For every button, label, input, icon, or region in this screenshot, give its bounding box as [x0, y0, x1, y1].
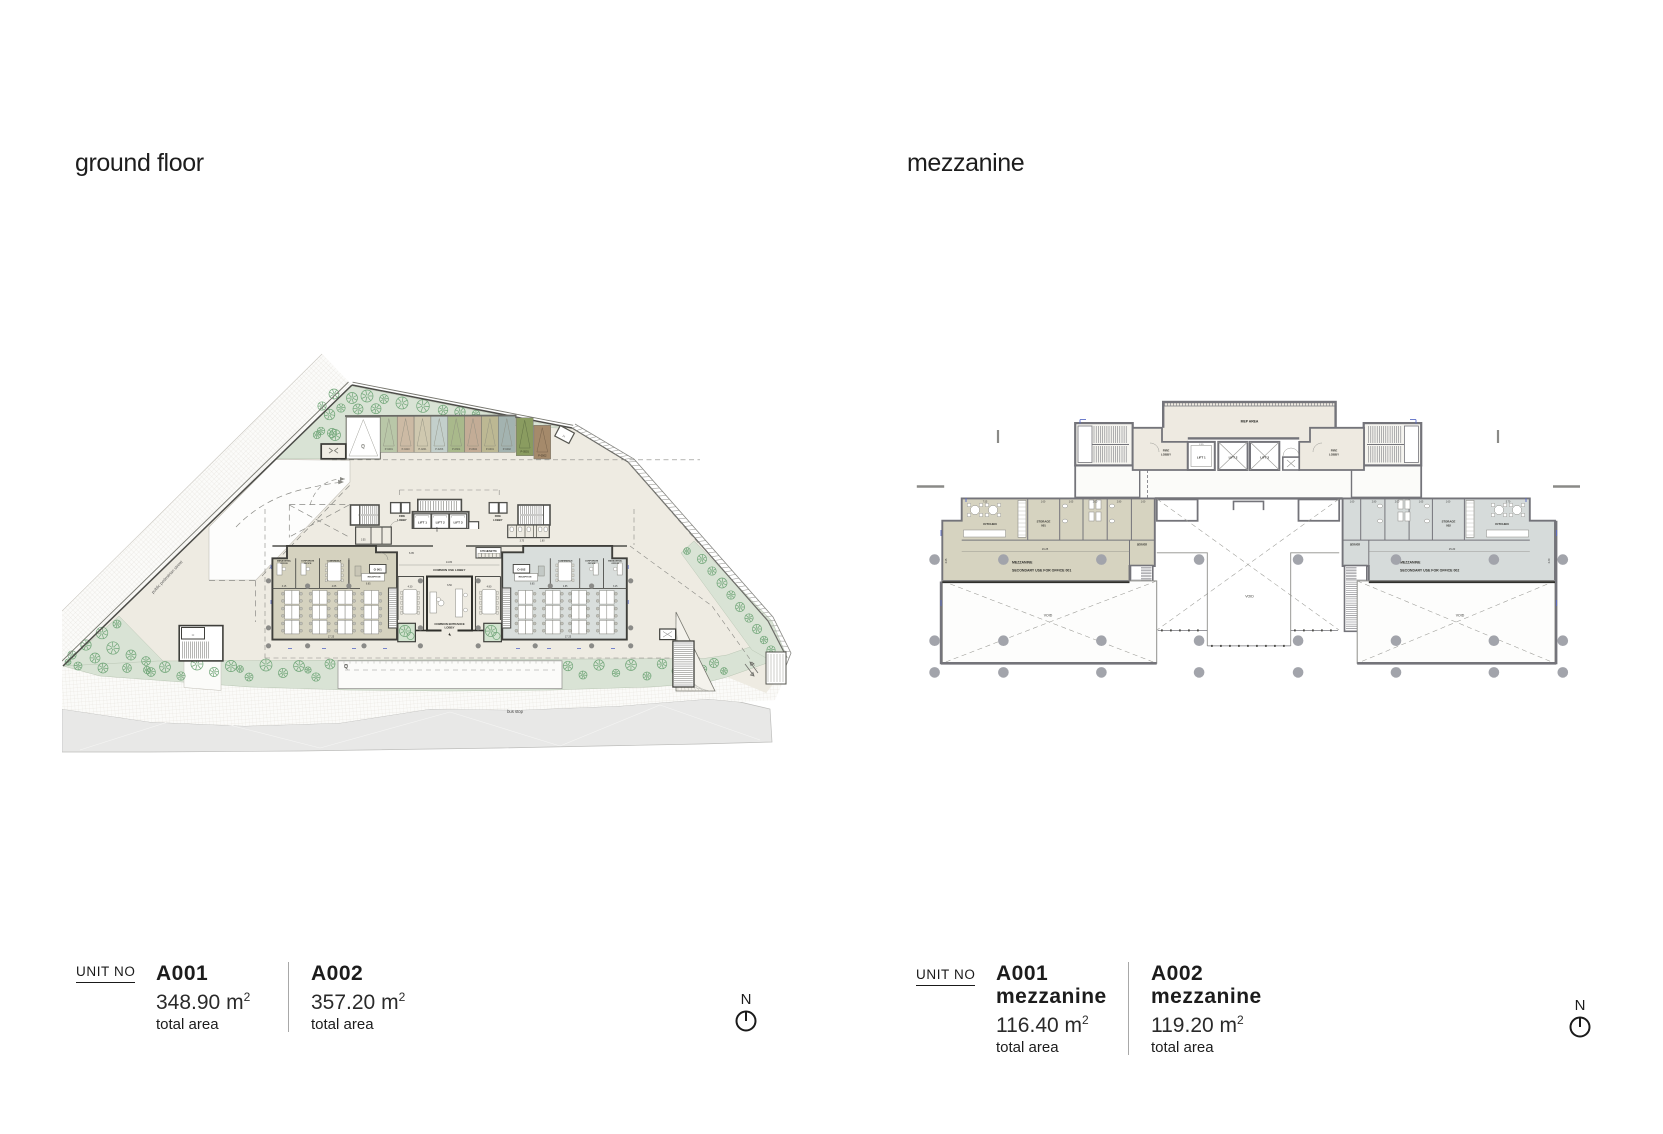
svg-text:OFFICE: OFFICE — [280, 563, 288, 565]
svg-text:1.65: 1.65 — [1419, 501, 1424, 503]
svg-text:3.15: 3.15 — [613, 586, 618, 588]
svg-text:2.00: 2.00 — [1093, 501, 1098, 503]
svg-text:P-0302: P-0302 — [469, 448, 478, 451]
svg-text:LIFT 1: LIFT 1 — [418, 520, 427, 524]
svg-text:3.25: 3.25 — [945, 558, 948, 563]
svg-text:1.65: 1.65 — [1069, 501, 1074, 503]
svg-text:5.70: 5.70 — [1506, 501, 1511, 503]
svg-text:RECEPTION: RECEPTION — [368, 577, 381, 579]
svg-text:CONFERENCE: CONFERENCE — [327, 561, 342, 563]
svg-text:17.25: 17.25 — [565, 635, 572, 638]
svg-text:VOID: VOID — [1245, 595, 1254, 599]
svg-text:002: 002 — [1446, 523, 1451, 527]
svg-text:3.40: 3.40 — [1548, 558, 1551, 563]
svg-text:MEZZANINE: MEZZANINE — [1012, 561, 1033, 565]
svg-text:CORPORATE: CORPORATE — [585, 560, 599, 563]
svg-text:FIRE: FIRE — [399, 514, 405, 518]
svg-text:6.95: 6.95 — [409, 552, 414, 555]
svg-text:1.60: 1.60 — [1141, 501, 1146, 503]
svg-text:LOBBY: LOBBY — [444, 626, 454, 630]
svg-text:4.80: 4.80 — [487, 585, 492, 588]
svg-text:LIFT 1: LIFT 1 — [1197, 455, 1206, 459]
svg-text:2.80: 2.80 — [1372, 501, 1377, 503]
svg-text:bus stop: bus stop — [507, 709, 524, 714]
svg-text:3.75: 3.75 — [520, 541, 525, 543]
svg-text:CONFERENCE: CONFERENCE — [558, 561, 573, 563]
svg-text:17.25: 17.25 — [328, 635, 335, 638]
svg-text:LOBBY: LOBBY — [1329, 453, 1339, 457]
svg-text:1.80: 1.80 — [540, 541, 545, 543]
svg-text:OFFICE: OFFICE — [611, 563, 619, 565]
svg-text:15.20: 15.20 — [1449, 547, 1456, 551]
svg-text:VOID: VOID — [1044, 614, 1053, 618]
svg-text:P-0401: P-0401 — [385, 448, 394, 451]
svg-text:6.65: 6.65 — [530, 584, 535, 586]
svg-text:CORPORATE: CORPORATE — [301, 560, 315, 563]
svg-text:6.50: 6.50 — [447, 584, 452, 587]
svg-text:P-0301: P-0301 — [452, 448, 461, 451]
svg-text:KITCHEN: KITCHEN — [983, 522, 996, 526]
svg-text:KITCHENETTE: KITCHENETTE — [480, 550, 497, 553]
svg-text:P-0402: P-0402 — [503, 448, 512, 451]
svg-text:LOBBY: LOBBY — [493, 518, 503, 522]
svg-text:LIFT 2: LIFT 2 — [436, 520, 445, 524]
svg-text:2.00: 2.00 — [1395, 501, 1400, 503]
svg-text:MANAGERIAL: MANAGERIAL — [608, 560, 623, 563]
svg-text:14.80: 14.80 — [446, 561, 453, 564]
svg-text:7.55: 7.55 — [983, 501, 988, 503]
svg-text:3.15: 3.15 — [282, 586, 287, 588]
svg-text:2.00: 2.00 — [435, 527, 438, 532]
svg-text:O 002: O 002 — [517, 567, 526, 571]
svg-text:P-0401: P-0401 — [486, 448, 495, 451]
svg-text:MEZZANINE: MEZZANINE — [1400, 561, 1421, 565]
svg-text:LOBBY: LOBBY — [397, 518, 407, 522]
svg-text:COMMON USE LOBBY: COMMON USE LOBBY — [433, 568, 465, 572]
svg-text:SECONDARY USE FOR OFFICE 002: SECONDARY USE FOR OFFICE 002 — [1400, 569, 1459, 573]
svg-text:FIRE: FIRE — [495, 514, 501, 518]
svg-text:LIFT 3: LIFT 3 — [1260, 455, 1269, 459]
svg-text:VOID: VOID — [1456, 614, 1465, 618]
svg-text:6.65: 6.65 — [366, 584, 371, 586]
svg-text:LIFT 2: LIFT 2 — [1229, 455, 1238, 459]
svg-text:4.65: 4.65 — [332, 586, 337, 588]
svg-text:3.55: 3.55 — [361, 540, 366, 542]
svg-text:LIFT 3: LIFT 3 — [454, 520, 463, 524]
svg-text:OFFICE: OFFICE — [588, 563, 596, 565]
svg-text:P-0201: P-0201 — [418, 448, 427, 451]
svg-text:SERVER: SERVER — [1137, 544, 1147, 547]
svg-text:P-0502: P-0502 — [538, 454, 547, 458]
svg-text:P-0410: P-0410 — [402, 448, 411, 451]
svg-text:O 001: O 001 — [374, 567, 383, 571]
svg-text:1.60: 1.60 — [1350, 501, 1355, 503]
svg-text:MEP AREA: MEP AREA — [1241, 420, 1259, 424]
svg-text:1.60: 1.60 — [1446, 501, 1451, 503]
svg-text:2.80: 2.80 — [1117, 501, 1122, 503]
svg-text:1.60: 1.60 — [1041, 501, 1046, 503]
svg-text:SECONDARY USE FOR OFFICE 001: SECONDARY USE FOR OFFICE 001 — [1012, 569, 1071, 573]
svg-text:MANAGERIAL: MANAGERIAL — [277, 560, 292, 563]
svg-text:SERVER: SERVER — [1350, 544, 1360, 547]
svg-text:P-0501: P-0501 — [521, 450, 530, 454]
svg-text:LOBBY: LOBBY — [1161, 453, 1171, 457]
svg-text:RECEPTION: RECEPTION — [519, 577, 532, 579]
svg-text:4.30: 4.30 — [408, 585, 413, 588]
svg-text:16.25: 16.25 — [1042, 547, 1049, 551]
svg-text:P-0203: P-0203 — [435, 448, 444, 451]
svg-text:KITCHEN: KITCHEN — [1495, 522, 1508, 526]
svg-text:001: 001 — [1041, 523, 1046, 527]
svg-text:OFFICE: OFFICE — [304, 563, 312, 565]
svg-text:4.65: 4.65 — [563, 586, 568, 588]
